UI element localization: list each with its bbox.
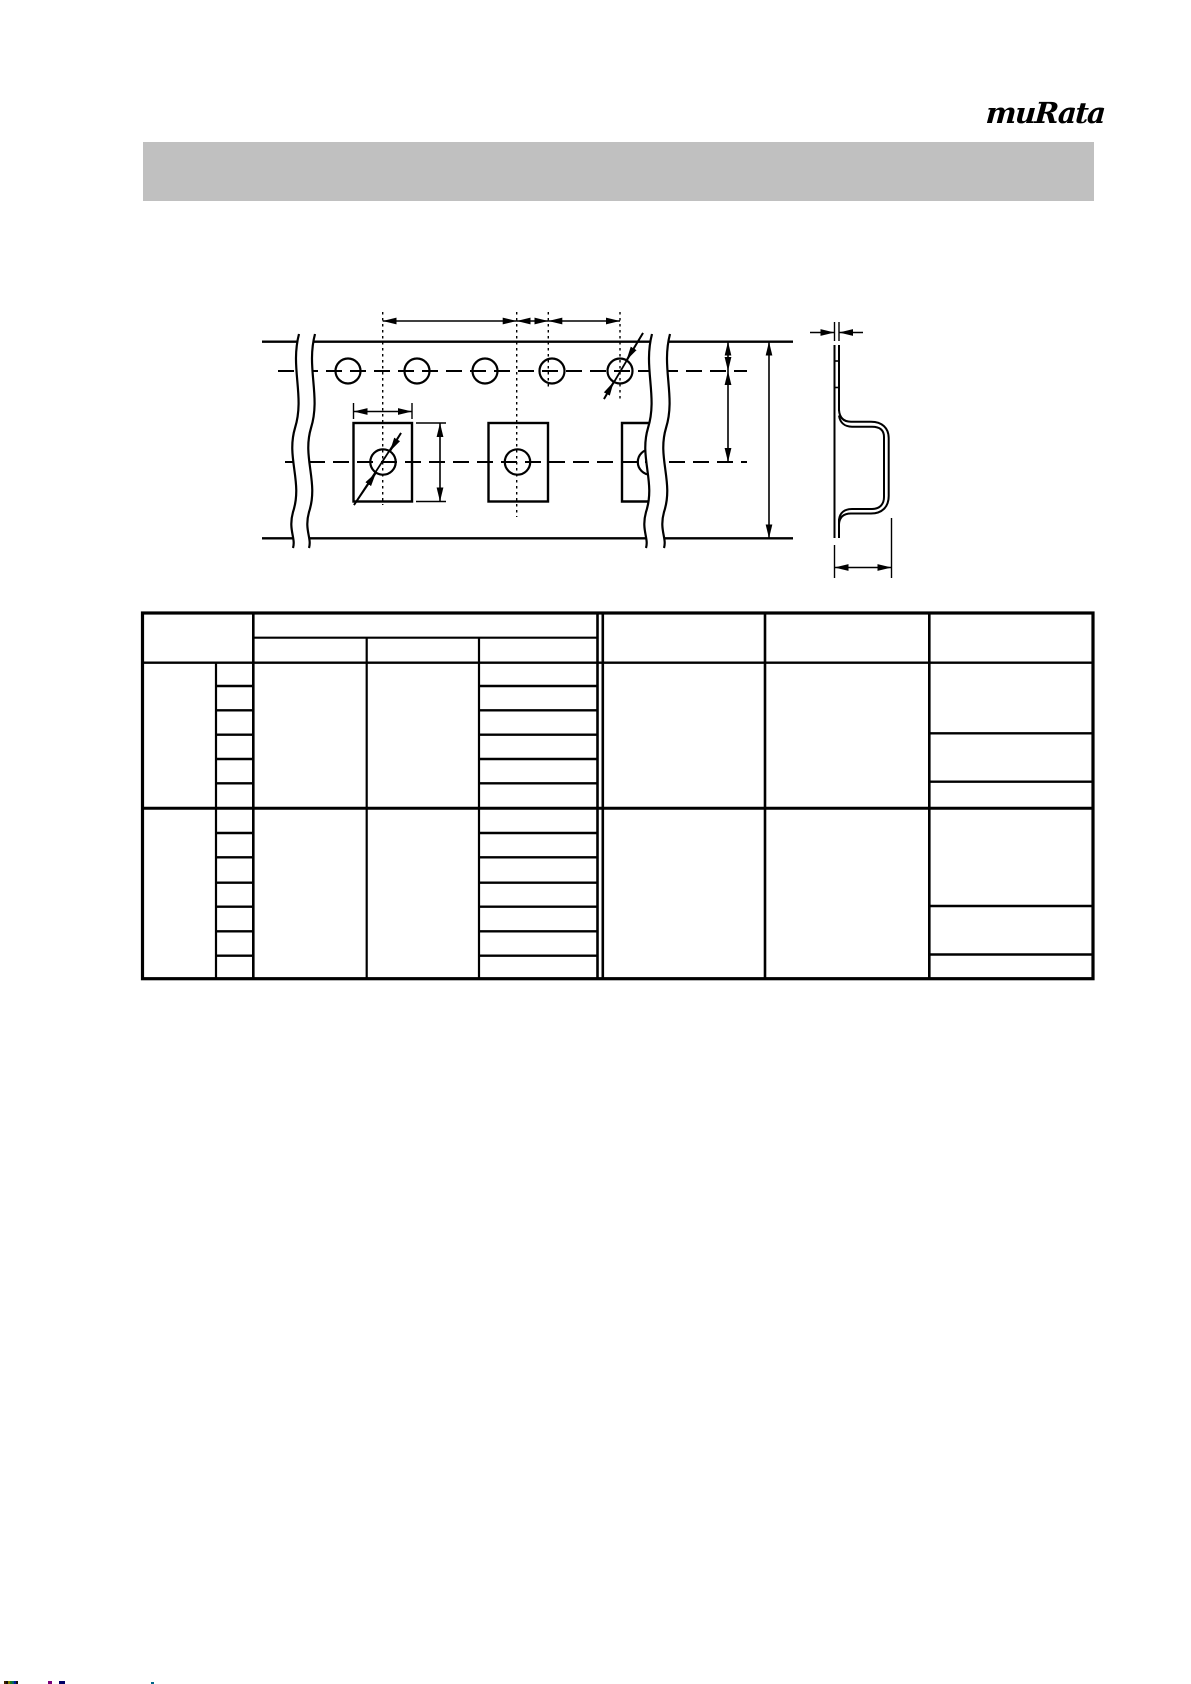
emboss-inner-surface	[839, 416, 884, 520]
technical-drawing	[0, 0, 1191, 1684]
dimension-annotations	[354, 312, 770, 538]
tape-cross-section	[810, 322, 892, 578]
clipped-footer-text	[0, 1678, 400, 1684]
datasheet-page: muRata	[0, 0, 1191, 1684]
dimensions-table-grid	[143, 613, 1094, 979]
wavy-break-lines	[291, 334, 670, 548]
tape-top-view	[262, 333, 793, 538]
